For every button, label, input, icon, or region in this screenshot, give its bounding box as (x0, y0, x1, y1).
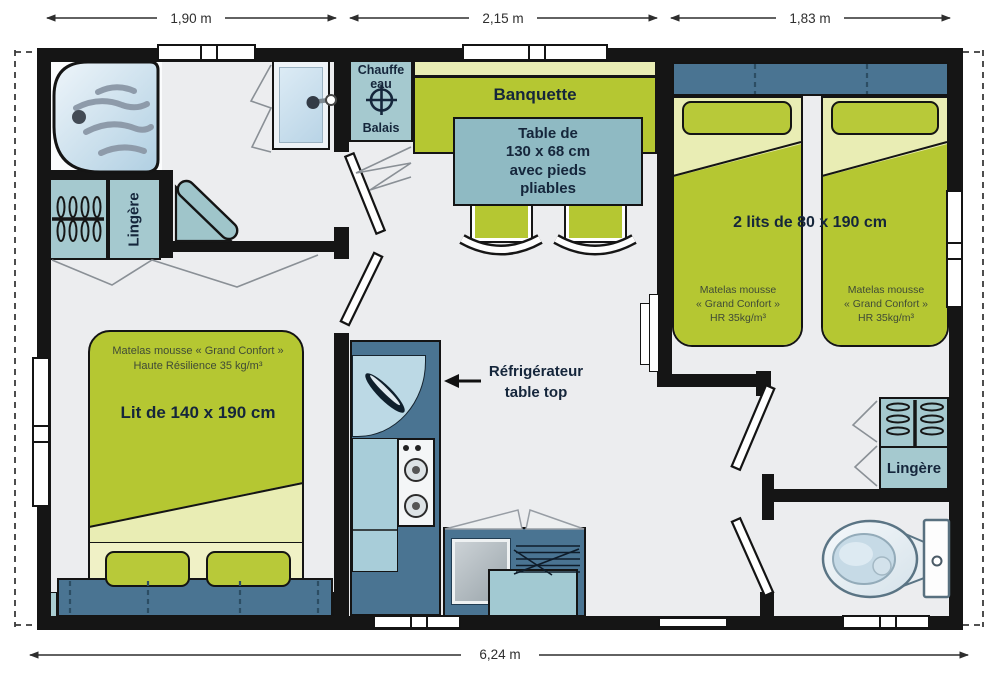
floor-plan: Lingère Chauffe eau Balais Banquette Tab… (0, 0, 1000, 681)
kitchen-low-cabinet (488, 569, 578, 617)
linen-closet-right-hangers (879, 397, 949, 449)
wall-kitchen (334, 333, 349, 616)
window-tick (200, 45, 218, 60)
washbasin (272, 60, 330, 150)
wall-twin-bedroom-endcap (756, 371, 771, 396)
wall-twin-bedroom-vertical (657, 48, 672, 385)
window-tick (410, 616, 428, 628)
wall-closet-top (48, 170, 173, 180)
mattress-line-1: Matelas mousse (848, 284, 924, 296)
banquette-backrest (413, 60, 657, 77)
wall-bathroom-endcap (334, 227, 349, 259)
table-label-4: pliables (520, 180, 576, 198)
window-bottom-kitchen (373, 615, 461, 629)
chair-left (472, 201, 531, 241)
mattress-line-1: Matelas mousse (700, 284, 776, 296)
table-label-1: Table de (518, 125, 578, 143)
wall-bathroom-horizontal (168, 241, 336, 252)
banquette-label: Banquette (433, 85, 637, 105)
mattress-line-2: « Grand Confort » (696, 298, 780, 310)
fridge-annotation: Réfrigérateur table top (470, 361, 602, 404)
twin-bed-left-pillow (682, 101, 792, 135)
window-top-living (462, 44, 608, 61)
linen-closet-label-section: Lingère (108, 178, 161, 260)
master-mattress-label: Matelas mousse « Grand Confort » Haute R… (98, 344, 298, 375)
mattress-line-2: « Grand Confort » (844, 298, 928, 310)
table-label-2: 130 x 68 cm (506, 143, 590, 161)
twin-headboard (672, 62, 949, 96)
wall-right (949, 48, 963, 630)
master-mattress-line-1: Matelas mousse « Grand Confort » (112, 345, 283, 357)
wall-bathroom-vertical (334, 48, 349, 152)
wall-wc-door-stub (760, 592, 774, 618)
master-pillow-left (105, 551, 190, 587)
heater-broom-closet: Chauffe eau Balais (349, 58, 413, 142)
dimension-width-1: 1,90 m (157, 10, 225, 27)
window-tick (947, 242, 962, 260)
fridge-label-2: table top (505, 384, 568, 401)
window-tick (879, 616, 897, 628)
window-tick (33, 425, 49, 443)
mattress-line-3: HR 35kg/m³ (858, 312, 914, 324)
window-top-bathroom (157, 44, 256, 61)
kitchen-cabinet (352, 438, 398, 572)
table-label-3: avec pieds (510, 162, 587, 180)
window-left-master (32, 357, 50, 507)
linen-closet-label: Lingère (126, 192, 143, 246)
heater-label-2: eau (351, 77, 411, 91)
twin-beds-title: 2 lits de 80 x 190 cm (680, 214, 940, 232)
dimension-width-2: 2,15 m (469, 10, 537, 27)
master-headboard (57, 578, 333, 617)
wall-wc-horizontal (762, 489, 949, 502)
window-tick (528, 45, 546, 60)
linen-closet-right-label-section: Lingère (879, 446, 949, 490)
broom-label: Balais (351, 121, 411, 135)
wall-bottom (37, 616, 963, 630)
heater-label-1: Chauffe (351, 63, 411, 77)
mattress-line-3: HR 35kg/m³ (710, 312, 766, 324)
shower-backdrop (48, 60, 162, 172)
master-bed-title: Lit de 140 x 190 cm (98, 403, 298, 423)
linen-closet-hanger-section (48, 178, 108, 260)
wall-left (37, 48, 51, 630)
wall-closet-right (160, 172, 173, 258)
folding-table: Table de 130 x 68 cm avec pieds pliables (453, 117, 643, 206)
twin-bed-right-mattress-label: Matelas mousse « Grand Confort » HR 35kg… (821, 284, 951, 326)
dimension-width-3: 1,83 m (776, 10, 844, 27)
window-bottom-wc (842, 615, 930, 629)
linen-closet-right-label: Lingère (887, 460, 941, 477)
fridge-label-1: Réfrigérateur (489, 363, 583, 380)
twin-bed-right-pillow (831, 101, 939, 135)
master-mattress-line-2: Haute Résilience 35 kg/m³ (133, 360, 262, 372)
twin-bed-left-mattress-label: Matelas mousse « Grand Confort » HR 35kg… (673, 284, 803, 326)
stove (397, 438, 435, 527)
wall-twin-bedroom-horizontal (657, 374, 760, 387)
dimension-total-width: 6,24 m (461, 646, 539, 663)
washbasin-bowl (279, 67, 323, 143)
master-pillow-right (206, 551, 291, 587)
sliding-door-panel-inner (649, 294, 659, 372)
window-bottom-corridor (658, 617, 728, 628)
chair-right (566, 201, 625, 241)
